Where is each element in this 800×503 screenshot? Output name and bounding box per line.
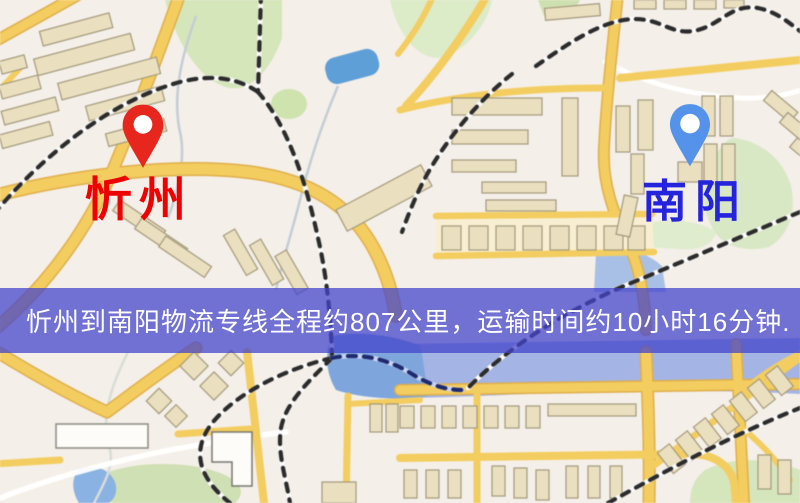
origin-city-label: 忻州 [85, 178, 193, 225]
route-info-text: 忻州到南阳物流专线全程约807公里，运输时间约10小时16分钟. [26, 302, 790, 339]
map-screenshot: 忻州 南阳 忻州到南阳物流专线全程约807公里，运输时间约10小时16分钟. [0, 0, 800, 503]
destination-city-label: 南阳 [642, 179, 748, 224]
route-info-banner: 忻州到南阳物流专线全程约807公里，运输时间约10小时16分钟. [0, 288, 800, 353]
origin-pin-icon[interactable] [121, 103, 165, 170]
map-background[interactable] [0, 0, 800, 503]
destination-pin-icon[interactable] [667, 103, 713, 168]
